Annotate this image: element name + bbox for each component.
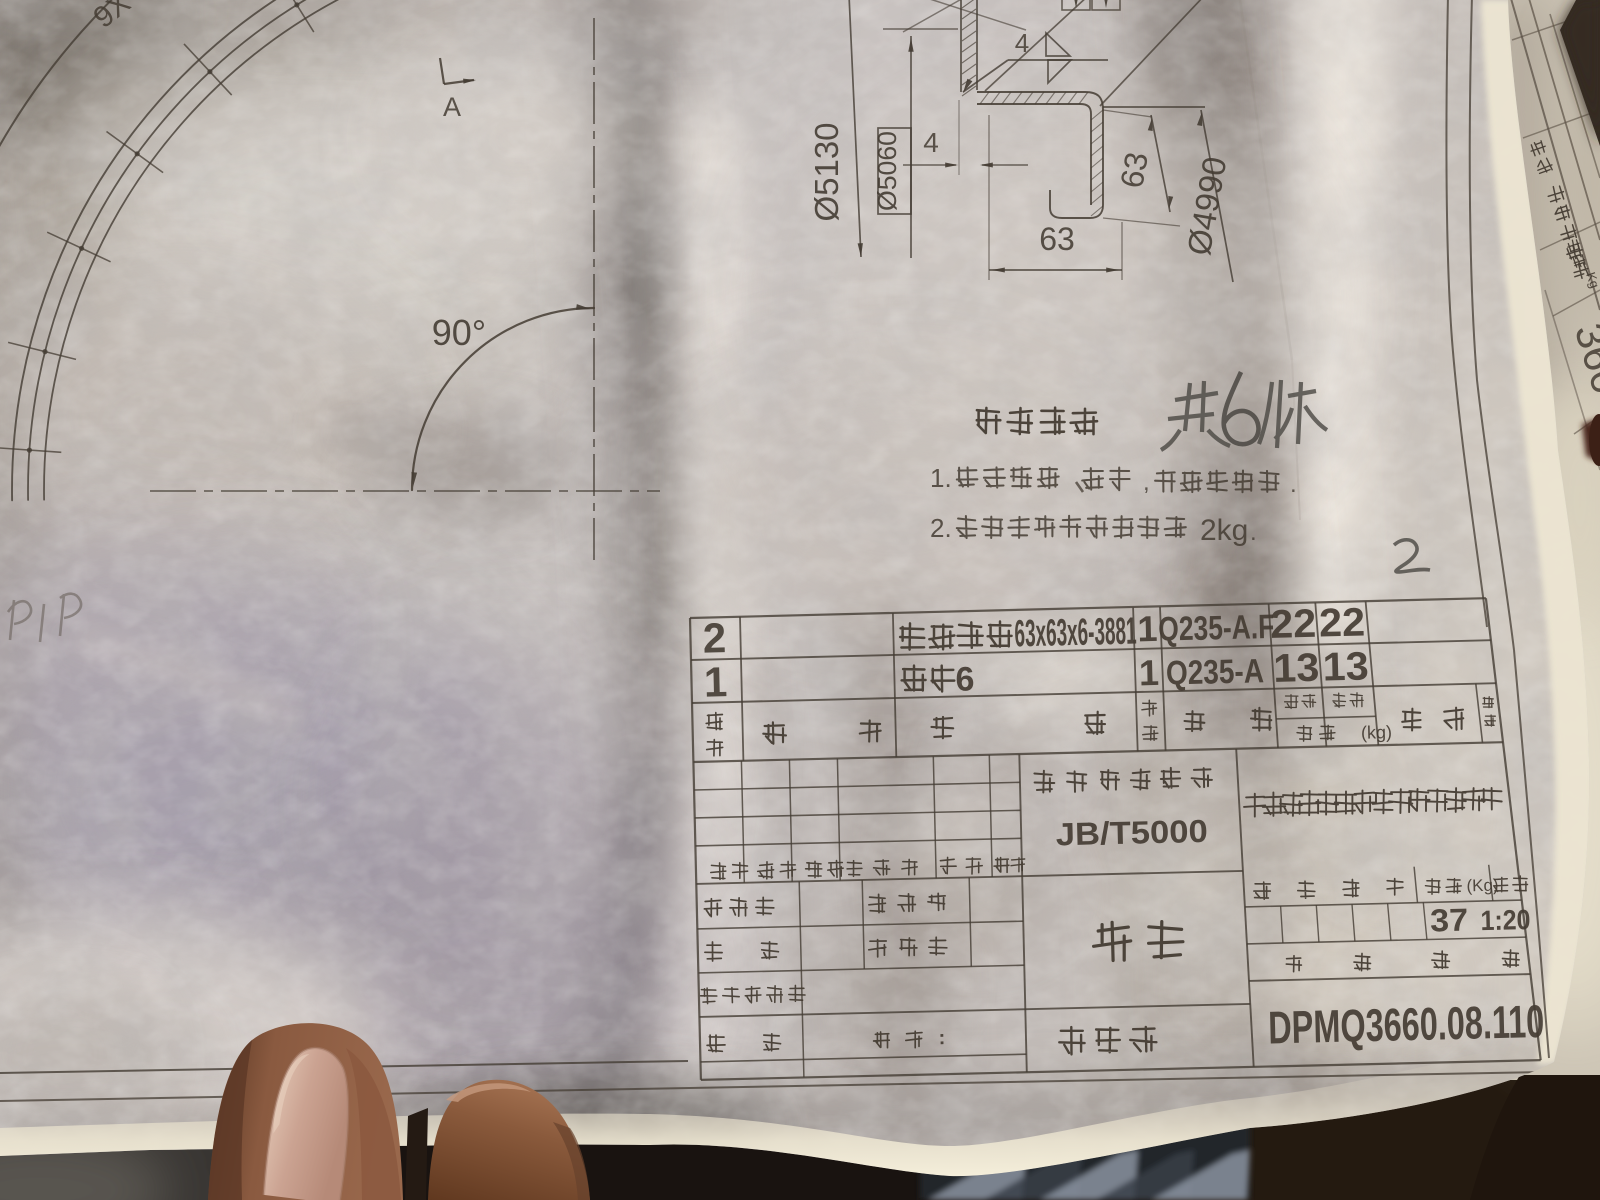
svg-text:90°: 90° <box>432 312 486 353</box>
svg-text:6: 6 <box>955 660 975 698</box>
svg-text:,: , <box>1143 469 1150 496</box>
svg-text:(kg): (kg) <box>1361 722 1392 743</box>
svg-text:1: 1 <box>1137 608 1158 649</box>
svg-text:1.: 1. <box>930 463 952 493</box>
svg-text:1: 1 <box>1139 652 1160 693</box>
svg-text:Q235-A.F: Q235-A.F <box>1158 608 1275 649</box>
svg-text:13: 13 <box>1322 644 1369 689</box>
svg-text:63x63x6-3881: 63x63x6-3881 <box>1014 611 1137 656</box>
svg-text:63: 63 <box>1039 221 1075 257</box>
svg-text:1:20: 1:20 <box>1480 904 1531 936</box>
svg-text:2.: 2. <box>930 513 952 543</box>
svg-text:4: 4 <box>923 127 939 158</box>
svg-text:Q235-A: Q235-A <box>1166 652 1265 692</box>
svg-text:1: 1 <box>703 658 727 706</box>
svg-text:22: 22 <box>1319 600 1366 645</box>
svg-text:Ø5060: Ø5060 <box>872 131 902 211</box>
svg-text::: : <box>938 1027 945 1049</box>
svg-text:.: . <box>1250 519 1257 546</box>
svg-text:Ø5130: Ø5130 <box>808 122 845 221</box>
svg-text:2kg: 2kg <box>1200 514 1248 547</box>
svg-text:A: A <box>443 92 461 122</box>
svg-text:13: 13 <box>1273 646 1320 691</box>
svg-text:JB/T5000: JB/T5000 <box>1055 813 1208 853</box>
svg-text:63: 63 <box>1113 149 1155 190</box>
svg-text:37: 37 <box>1430 902 1469 939</box>
svg-text:.: . <box>1290 471 1297 498</box>
svg-text:DPMQ3660.08.110: DPMQ3660.08.110 <box>1268 995 1545 1053</box>
svg-text:22: 22 <box>1270 602 1317 647</box>
svg-text:2: 2 <box>702 614 726 662</box>
svg-text:4: 4 <box>1015 28 1029 58</box>
